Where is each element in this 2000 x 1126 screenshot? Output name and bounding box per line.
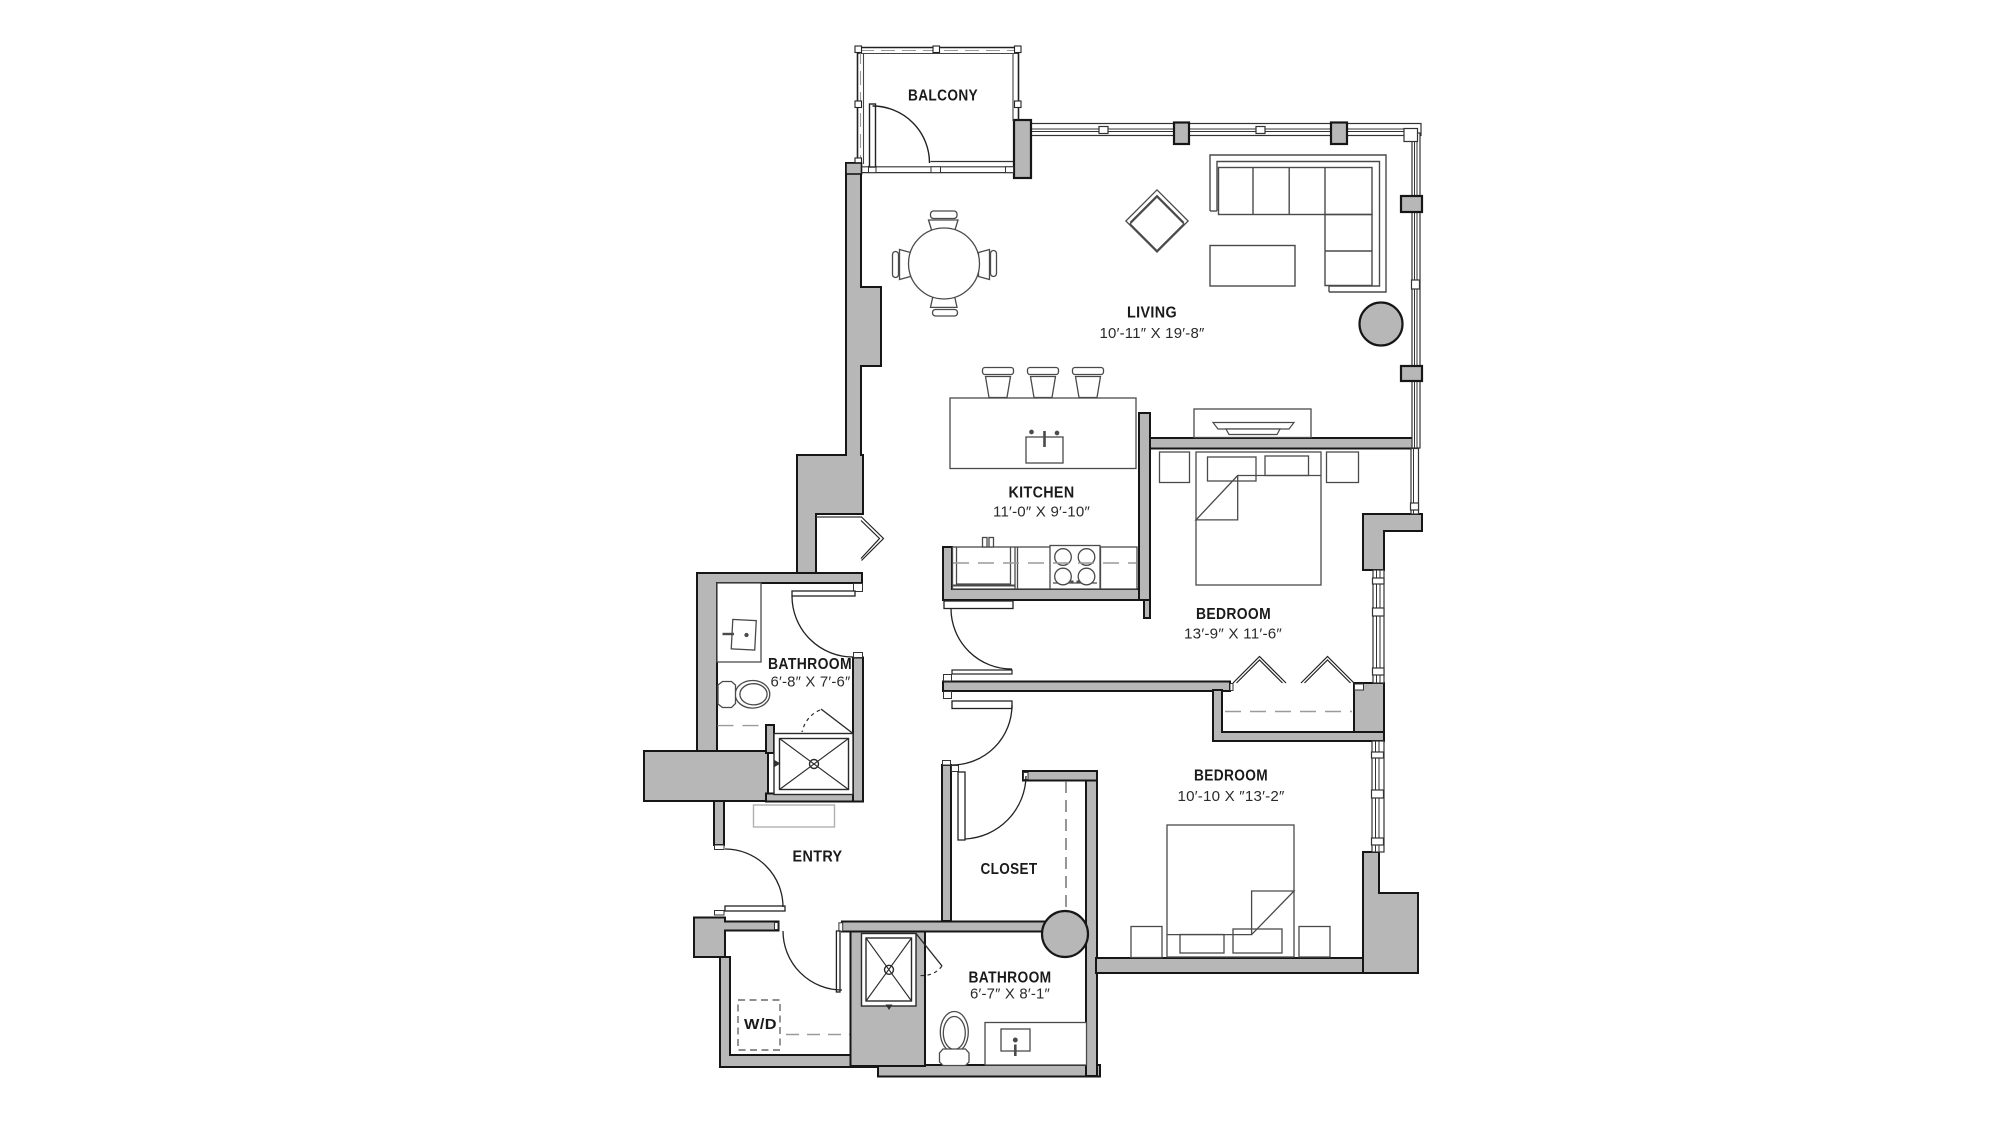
svg-text:BATHROOM: BATHROOM — [969, 970, 1052, 987]
svg-text:LIVING: LIVING — [1127, 305, 1177, 322]
svg-text:BEDROOM: BEDROOM — [1194, 768, 1268, 785]
svg-text:11′-0″ X 9′-10″: 11′-0″ X 9′-10″ — [993, 504, 1090, 521]
svg-text:10′-11″ X 19′-8″: 10′-11″ X 19′-8″ — [1100, 325, 1205, 342]
svg-text:BEDROOM: BEDROOM — [1196, 606, 1271, 623]
svg-text:13′-9″ X 11′-6″: 13′-9″ X 11′-6″ — [1184, 626, 1282, 643]
svg-text:6′-7″ X 8′-1″: 6′-7″ X 8′-1″ — [970, 986, 1050, 1003]
svg-text:CLOSET: CLOSET — [981, 861, 1038, 878]
svg-text:6′-8″ X 7′-6″: 6′-8″ X 7′-6″ — [771, 674, 851, 691]
svg-text:W/D: W/D — [744, 1016, 777, 1033]
svg-text:10′-10 X ″13′-2″: 10′-10 X ″13′-2″ — [1178, 788, 1285, 805]
svg-text:BALCONY: BALCONY — [908, 88, 978, 105]
svg-text:KITCHEN: KITCHEN — [1009, 484, 1075, 501]
svg-text:BATHROOM: BATHROOM — [768, 656, 852, 673]
svg-text:ENTRY: ENTRY — [793, 848, 843, 865]
